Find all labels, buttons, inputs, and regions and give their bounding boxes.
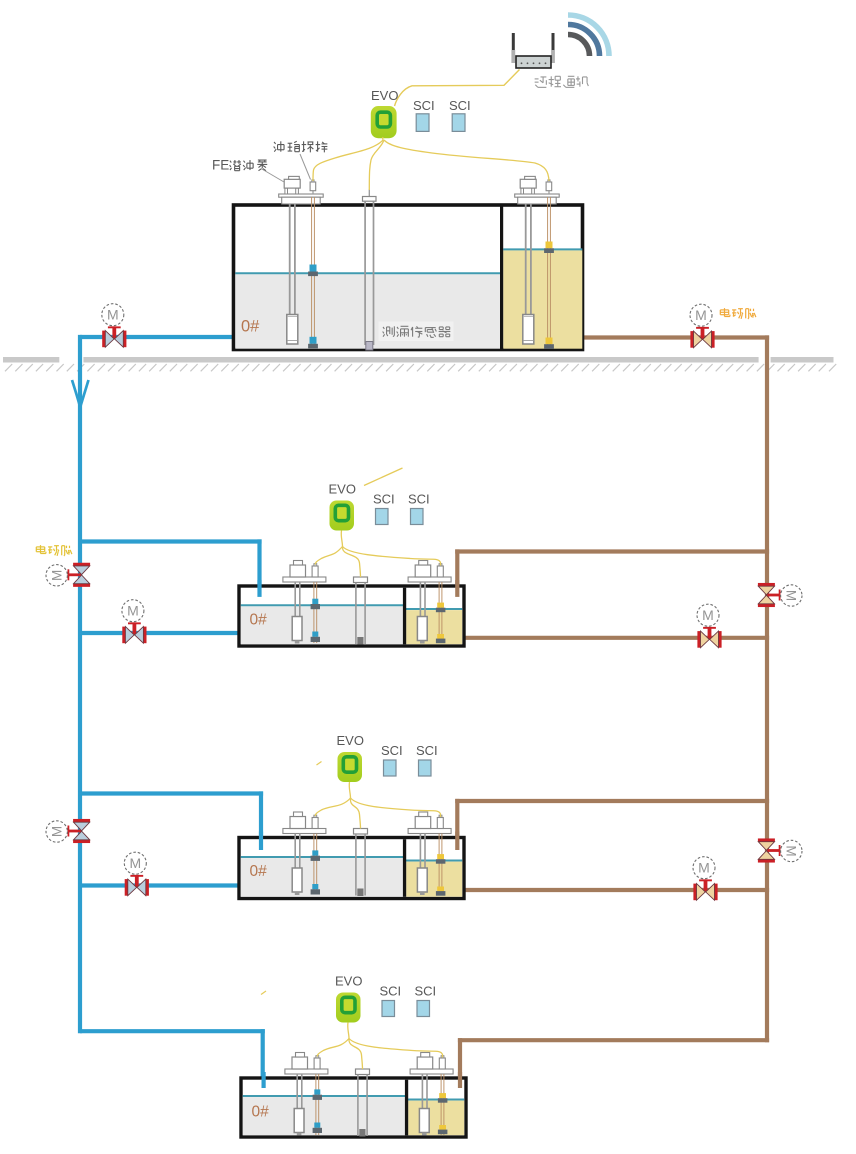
svg-text:M: M [49,826,64,837]
svg-text:M: M [784,845,799,856]
svg-text:EVO: EVO [371,88,398,103]
svg-text:0#: 0# [250,863,268,880]
svg-text:SCI: SCI [413,98,435,113]
svg-text:M: M [107,306,119,322]
svg-text:EVO: EVO [335,974,362,989]
svg-text:EVO: EVO [329,482,356,497]
svg-text:M: M [129,855,141,871]
svg-text:SCI: SCI [380,983,402,998]
svg-text:M: M [702,607,714,623]
svg-text:SCI: SCI [416,743,438,758]
svg-text:M: M [698,859,710,875]
svg-text:0#: 0# [241,318,260,336]
svg-text:M: M [49,570,64,581]
svg-text:SCI: SCI [373,491,395,506]
svg-text:SCI: SCI [408,491,430,506]
svg-text:M: M [784,590,799,601]
svg-text:EVO: EVO [337,733,364,748]
svg-text:M: M [127,602,139,618]
svg-text:0#: 0# [252,1104,270,1121]
svg-text:SCI: SCI [415,983,437,998]
svg-text:M: M [695,307,707,323]
svg-text:FE: FE [212,158,229,173]
svg-text:0#: 0# [250,612,268,629]
svg-text:SCI: SCI [449,98,471,113]
svg-text:SCI: SCI [381,743,403,758]
